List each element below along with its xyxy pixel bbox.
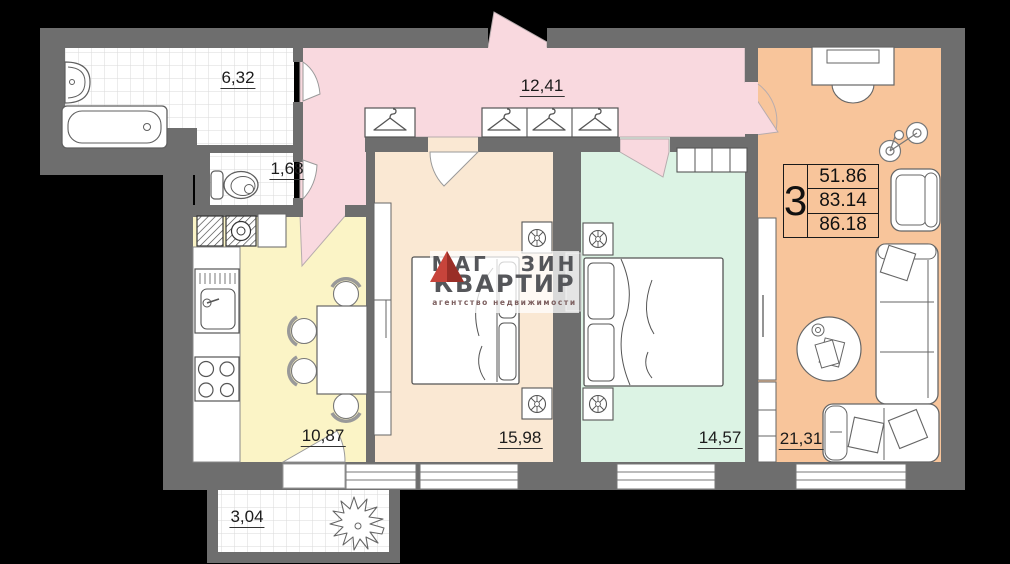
chair-icon [289, 317, 317, 345]
kitchen-sink-icon [195, 269, 239, 333]
lamp-icon [590, 396, 607, 413]
logo-triangle-icon [430, 251, 464, 282]
toilet-icon [211, 171, 258, 199]
watermark: МАГ ЗИН КВАРТИР агентство недвижимости [430, 251, 579, 313]
living-area-value: 51.86 [808, 165, 878, 188]
area-label-balcony: 3,04 [229, 507, 264, 527]
watermark-tagline: агентство недвижимости [430, 298, 579, 307]
lamp-icon [529, 396, 546, 413]
armchair-icon [891, 169, 940, 231]
dining-table [317, 306, 367, 394]
floor-plan-page: 6,32 1,68 12,41 10,87 15,98 14,57 21,31 … [0, 0, 1010, 564]
area-label-kitchen: 10,87 [301, 426, 346, 446]
area-label-hallway: 12,41 [520, 76, 565, 96]
bathtub-icon [62, 106, 167, 148]
area-label-toilet: 1,68 [269, 159, 304, 179]
hallway-wardrobes [365, 108, 618, 137]
area-label-bathroom: 6,32 [220, 68, 255, 88]
chair-icon [332, 279, 360, 307]
chair-icon [332, 394, 360, 422]
area-label-bedroom-1: 15,98 [498, 428, 543, 448]
desk-icon [812, 47, 894, 85]
windows [346, 464, 906, 489]
lamp-icon [529, 230, 546, 247]
wardrobe-triple [482, 108, 618, 137]
window-icon [420, 464, 518, 489]
window-icon [617, 464, 715, 489]
living-room-doorway [745, 82, 758, 134]
stove-icon [195, 357, 239, 401]
appliance-icon [197, 216, 223, 246]
area-label-living: 21,31 [779, 429, 824, 449]
area-label-bedroom-2: 14,57 [698, 428, 743, 448]
bedroom-1-closet [374, 203, 391, 435]
balcony-door-sill [283, 464, 345, 488]
chair-icon [289, 357, 317, 385]
kitchen-cabinet [258, 214, 286, 247]
washing-machine-icon [232, 222, 251, 241]
rooms-count: 3 [784, 165, 808, 237]
total-area-value: 86.18 [808, 213, 878, 237]
window-icon [796, 464, 906, 489]
pillow-icon [848, 417, 884, 453]
shelf-unit [758, 218, 776, 462]
window-icon [346, 464, 416, 489]
lamp-icon [590, 231, 607, 248]
apartment-area-value: 83.14 [808, 188, 878, 212]
wardrobe-single [365, 108, 415, 137]
apartment-info-table: 3 51.86 83.14 86.18 [783, 164, 879, 238]
utility-appliances [197, 214, 286, 247]
coffee-table-icon [797, 317, 861, 381]
bed-icon [584, 258, 723, 386]
